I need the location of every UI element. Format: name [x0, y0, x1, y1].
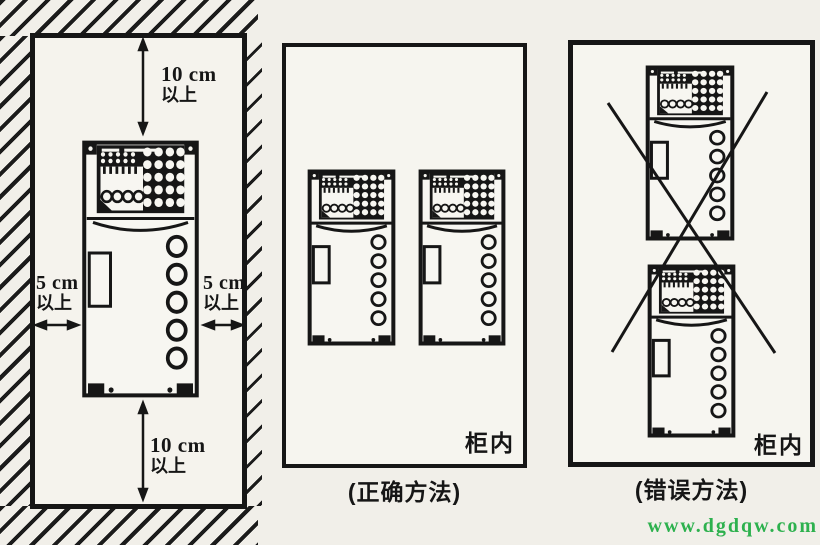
clearance-label-left: 5 cm 以上	[36, 273, 79, 313]
caption-wrong-method: (错误方法)	[568, 471, 815, 505]
clearance-right-value: 5 cm	[203, 273, 246, 294]
cabinet-correct: 柜内	[282, 43, 527, 468]
clearance-label-bottom: 10 cm 以上	[150, 435, 206, 476]
clearance-label-right: 5 cm 以上	[203, 273, 246, 313]
caption-correct-method: (正确方法)	[282, 473, 527, 507]
inverter-drawing-correct-2	[416, 167, 508, 348]
inverter-drawing-wrong-top	[643, 63, 737, 243]
hatched-wall-bottom	[0, 506, 258, 545]
clearance-left-value: 5 cm	[36, 273, 79, 294]
inverter-drawing-wrong-bottom	[645, 262, 738, 440]
clearance-top-note: 以上	[161, 86, 217, 105]
inverter-drawing-wall	[78, 136, 203, 402]
clearance-bottom-value: 10 cm	[150, 435, 206, 457]
installation-clearance-diagram: 10 cm 以上 5 cm 以上 5 cm 以上 10 cm 以上 柜内 (正确…	[0, 0, 820, 545]
hatched-wall-top	[0, 0, 258, 36]
clearance-label-top: 10 cm 以上	[161, 64, 217, 105]
cabinet-wrong: 柜内	[568, 40, 815, 467]
mounting-surface: 10 cm 以上 5 cm 以上 5 cm 以上 10 cm 以上	[30, 33, 247, 509]
clearance-left-note: 以上	[36, 294, 79, 313]
hatched-wall-left	[0, 36, 33, 506]
cabinet-label-wrong: 柜内	[754, 426, 804, 460]
watermark-url: www.dgdqw.com	[648, 515, 818, 538]
clearance-top-value: 10 cm	[161, 64, 217, 86]
cabinet-label-correct: 柜内	[465, 424, 515, 458]
clearance-right-note: 以上	[203, 294, 246, 313]
clearance-bottom-note: 以上	[150, 457, 206, 476]
hatched-wall-right-ticks	[247, 36, 262, 506]
inverter-drawing-correct-1	[305, 167, 398, 348]
